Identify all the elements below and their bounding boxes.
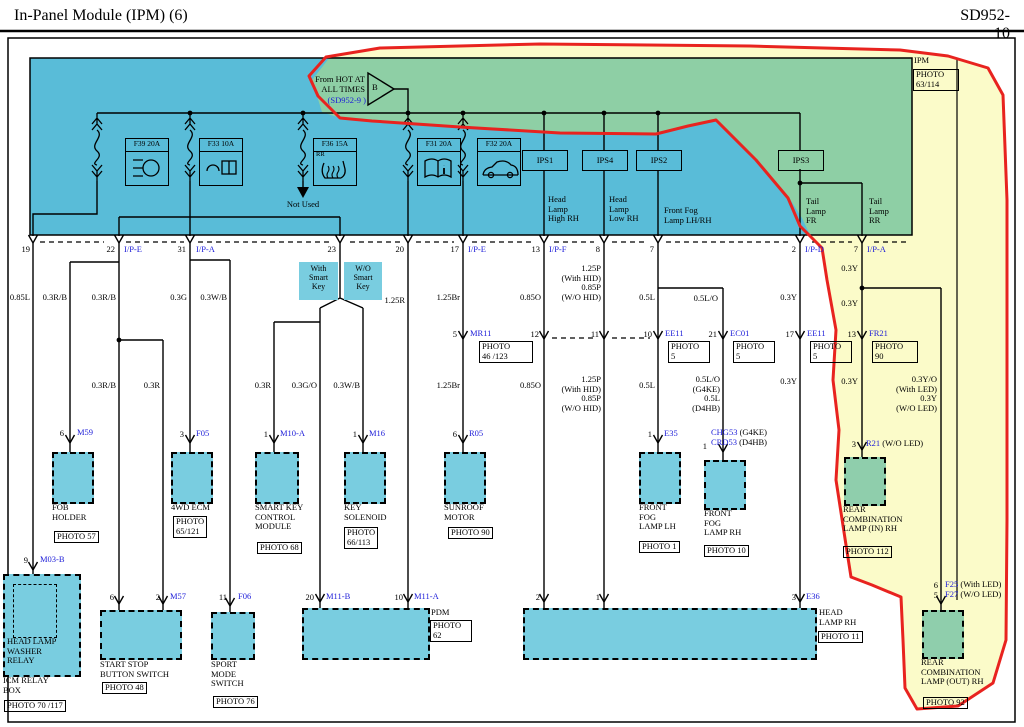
pin-19: 19: [22, 245, 31, 255]
conn-m11b: M11-B: [326, 592, 350, 602]
power-source-label: From HOT AT ALL TIMES: [315, 75, 365, 94]
wire-label: 1.25Br: [437, 381, 460, 391]
conn-m03b: M03-B: [40, 555, 65, 565]
mid-pin-11: 11: [591, 330, 599, 340]
conn-ipa-2: I/P-A: [867, 245, 886, 255]
icm-pin: 9: [24, 556, 28, 566]
rearout-photo-ref: PHOTO 92: [923, 697, 968, 709]
hlrh-pin2: 2: [536, 593, 540, 603]
washer-relay-inner-box: [13, 584, 57, 638]
fuse-f32-iconbox: [477, 150, 521, 186]
wire-label: 0.3R/B: [43, 293, 67, 303]
wire-label: 0.5L/O (G4KE) 0.5L (D4HB): [692, 375, 720, 413]
wire-label: 0.3Y: [841, 377, 858, 387]
rearin-pin: 3: [852, 440, 856, 450]
head-lamp-rh-label: HEAD LAMP RH: [819, 608, 856, 627]
pin-17: 17: [451, 245, 460, 255]
wire-label: 0.3W/B: [200, 293, 227, 303]
wire-label: 0.85O: [520, 381, 541, 391]
4wd-ecm-box: [171, 452, 213, 504]
mid-pin-21: 21: [709, 330, 718, 340]
key-solenoid-box: [344, 452, 386, 504]
start-stop-switch-box: [100, 610, 182, 660]
fuse-f33-iconbox: [199, 150, 243, 186]
conn-ipf: I/P-F: [549, 245, 566, 255]
conn-ee11-a: EE11: [665, 329, 684, 339]
ips3-box: IPS3: [778, 150, 824, 171]
ecm-pin: 3: [180, 430, 184, 440]
conn-m59: M59: [77, 428, 93, 438]
sport-mode-switch-box: [211, 612, 255, 660]
front-fog-rh-label: FRONT FOG LAMP RH: [704, 509, 741, 538]
conn-crd53-note: (D4HB): [739, 437, 767, 447]
circuit-headlamp-low: Head Lamp Low RH: [609, 195, 639, 224]
skcm-pin: 1: [264, 430, 268, 440]
icm-photo-ref: PHOTO 70 /117: [4, 700, 66, 712]
rear-comb-in-label: REAR COMBINATION LAMP (IN) RH: [843, 505, 903, 534]
key-solenoid-label: KEY SOLENOID: [344, 503, 387, 522]
wire-label: 1.25R: [384, 296, 405, 306]
conn-mr11: MR11: [470, 329, 491, 339]
wire-label: 1.25P (With HID) 0.85P (W/O HID): [561, 375, 601, 413]
wire-label: 0.3Y: [780, 293, 797, 303]
pin-23: 23: [328, 245, 337, 255]
conn-f25: F25: [945, 579, 958, 589]
conn-crd53: CRD53: [711, 437, 737, 447]
rear-comb-in-box: [844, 457, 886, 506]
sport-photo-ref: PHOTO 76: [213, 696, 258, 708]
fr21-photo-ref: PHOTO 90: [872, 341, 918, 363]
4wd-ecm-label: 4WD ECM: [171, 503, 210, 513]
wire-label: 0.3R: [144, 381, 160, 391]
front-fog-lh-label: FRONT FOG LAMP LH: [639, 503, 676, 532]
icm-relay-box-label: ICM RELAY BOX: [3, 676, 49, 695]
wire-label: 0.5L/O: [694, 294, 718, 304]
conn-f27-line: F27 (W/O LED): [945, 590, 1001, 600]
fuse-f39-iconbox: [125, 150, 169, 186]
circuit-front-fog: Front Fog Lamp LH/RH: [664, 206, 711, 225]
startstop-photo-ref: PHOTO 48: [102, 682, 147, 694]
foglh-photo-ref: PHOTO 1: [639, 541, 680, 553]
page-title: In-Panel Module (IPM) (6): [14, 7, 188, 25]
ips1-box: IPS1: [522, 150, 568, 171]
circuit-tail-fr: Tail Lamp FR: [806, 197, 826, 226]
wire-label: 0.3G: [170, 293, 187, 303]
fuse-f36-sub: RR: [316, 151, 325, 158]
pdm-photo-ref: PHOTO 62: [430, 620, 472, 642]
conn-ee11-b: EE11: [807, 329, 826, 339]
pin-13: 13: [532, 245, 541, 255]
pin-7b: 7: [854, 245, 858, 255]
sport-mode-switch-label: SPORT MODE SWITCH: [211, 660, 244, 689]
mid-pin-13: 13: [848, 330, 857, 340]
wire-label: 0.5L: [639, 381, 655, 391]
rear-comb-out-box: [922, 610, 964, 659]
fob-holder-box: [52, 452, 94, 504]
conn-ec01: EC01: [730, 329, 749, 339]
wire-label: 0.3Y: [780, 377, 797, 387]
conn-r21: R21: [866, 438, 880, 448]
fob-photo-ref: PHOTO 57: [54, 531, 99, 543]
pin-2: 2: [792, 245, 796, 255]
smart-key-module-label: SMART KEY CONTROL MODULE: [255, 503, 303, 532]
conn-crd53-line: CRD53 (D4HB): [711, 438, 767, 448]
front-fog-lh-box: [639, 452, 681, 504]
rear-comb-out-label: REAR COMBINATION LAMP (OUT) RH: [921, 658, 984, 687]
ips4-box: IPS4: [582, 150, 628, 171]
wire-label: 0.3G/O: [292, 381, 317, 391]
pin-8: 8: [596, 245, 600, 255]
wire-label: 1.25Br: [437, 293, 460, 303]
fogrh-pin: 1: [703, 442, 707, 452]
pdm-pin10: 10: [395, 593, 404, 603]
keysol-pin: 1: [353, 430, 357, 440]
power-source-ref: (SD952-9 ): [328, 96, 366, 106]
with-smart-key-box: With Smart Key: [299, 262, 338, 300]
conn-fr21: FR21: [869, 329, 888, 339]
pin-22: 22: [107, 245, 116, 255]
ec01-photo-ref: PHOTO 5: [733, 341, 775, 363]
conn-r21-line: R21 (W/O LED): [866, 439, 923, 449]
front-fog-rh-box: [704, 460, 746, 510]
hlrh-pin3: 3: [792, 593, 796, 603]
head-lamp-rh-box: [523, 608, 817, 660]
sunroof-photo-ref: PHOTO 90: [448, 527, 493, 539]
pdm-pin20: 20: [306, 593, 315, 603]
wire-label: 0.3Y: [841, 299, 858, 309]
wire-label: 0.3Y: [841, 264, 858, 274]
wire-label: 0.5L: [639, 293, 655, 303]
mr11-photo-ref: PHOTO 46 /123: [479, 341, 533, 363]
conn-f06: F06: [238, 592, 251, 602]
conn-chg53-note: (G4KE): [740, 427, 767, 437]
sunroof-pin: 6: [453, 430, 457, 440]
ipm-label: IPM: [914, 56, 929, 66]
mid-pin-5: 5: [453, 330, 457, 340]
ips2-box: IPS2: [636, 150, 682, 171]
wire-label: 1.25P (With HID) 0.85P (W/O HID): [561, 264, 601, 302]
ipm-photo-ref: PHOTO 63/114: [913, 69, 959, 91]
triangle-b-label: B: [372, 83, 378, 93]
mid-pin-17: 17: [786, 330, 795, 340]
startstop-pin6: 6: [110, 593, 114, 603]
page-code: SD952-10: [960, 7, 1010, 43]
conn-f27-note: (W/O LED): [960, 589, 1001, 599]
conn-ipe-1: I/P-E: [124, 245, 142, 255]
conn-m16: M16: [369, 429, 385, 439]
conn-r21-note: (W/O LED): [882, 438, 923, 448]
wire-label: 0.85O: [520, 293, 541, 303]
conn-f05: F05: [196, 429, 209, 439]
ecm-photo-ref: PHOTO 65/121: [173, 516, 207, 538]
not-used-label: Not Used: [281, 200, 325, 210]
conn-e35: E35: [664, 429, 678, 439]
conn-m57: M57: [170, 592, 186, 602]
fob-holder-label: FOB HOLDER: [52, 503, 86, 522]
pdm-label: PDM: [431, 608, 449, 618]
fob-pin: 6: [60, 429, 64, 439]
sunroof-motor-label: SUNROOF MOTOR: [444, 503, 484, 522]
conn-e36: E36: [806, 592, 820, 602]
ee11b-photo-ref: PHOTO 5: [810, 341, 852, 363]
hlrh-pin1: 1: [596, 593, 600, 603]
conn-r05: R05: [469, 429, 483, 439]
skcm-photo-ref: PHOTO 68: [257, 542, 302, 554]
wo-smart-key-box: W/O Smart Key: [344, 262, 382, 300]
foglh-pin: 1: [648, 430, 652, 440]
wire-label: 0.85L: [10, 293, 30, 303]
fuse-f31-iconbox: [417, 150, 461, 186]
conn-ipe-2: I/P-E: [468, 245, 486, 255]
mid-pin-10: 10: [644, 330, 653, 340]
wiring-diagram-page: In-Panel Module (IPM) (6) SD952-10 docum…: [0, 0, 1024, 727]
wire-label: 0.3R: [255, 381, 271, 391]
sunroof-motor-box: [444, 452, 486, 504]
conn-m10a: M10-A: [280, 429, 305, 439]
smart-key-module-box: [255, 452, 299, 504]
conn-ipa-1: I/P-A: [196, 245, 215, 255]
ee11-photo-ref: PHOTO 5: [668, 341, 710, 363]
pin-31: 31: [178, 245, 187, 255]
keysol-photo-ref: PHOTO 66/113: [344, 527, 378, 549]
conn-chg53: CHG53: [711, 427, 737, 437]
rearout-pin5: 5: [934, 591, 938, 601]
rearin-photo-ref: PHOTO 112: [843, 546, 892, 558]
sport-pin: 11: [219, 593, 227, 603]
conn-f25-note: (With LED): [960, 579, 1001, 589]
washer-relay-label: HEAD LAMP WASHER RELAY: [7, 637, 56, 666]
conn-f27: F27: [945, 589, 958, 599]
pin-arrows: [29, 235, 946, 606]
wire-label: 0.3R/B: [92, 381, 116, 391]
conn-ipd: I/P-D: [805, 245, 824, 255]
wire-label: 0.3W/B: [333, 381, 360, 391]
startstop-pin2: 2: [156, 593, 160, 603]
circuit-tail-rr: Tail Lamp RR: [869, 197, 889, 226]
wire-label: 0.3Y/O (With LED) 0.3Y (W/O LED): [896, 375, 937, 413]
start-stop-switch-label: START STOP BUTTON SWITCH: [100, 660, 169, 679]
hlrh-photo-ref: PHOTO 11: [818, 631, 863, 643]
conn-m11a: M11-A: [414, 592, 439, 602]
pdm-box: [302, 608, 430, 660]
circuit-headlamp-high: Head Lamp High RH: [548, 195, 579, 224]
pin-20: 20: [396, 245, 405, 255]
wire-label: 0.3R/B: [92, 293, 116, 303]
fogrh-photo-ref: PHOTO 10: [704, 545, 749, 557]
mid-pin-12: 12: [531, 330, 540, 340]
pin-7: 7: [650, 245, 654, 255]
